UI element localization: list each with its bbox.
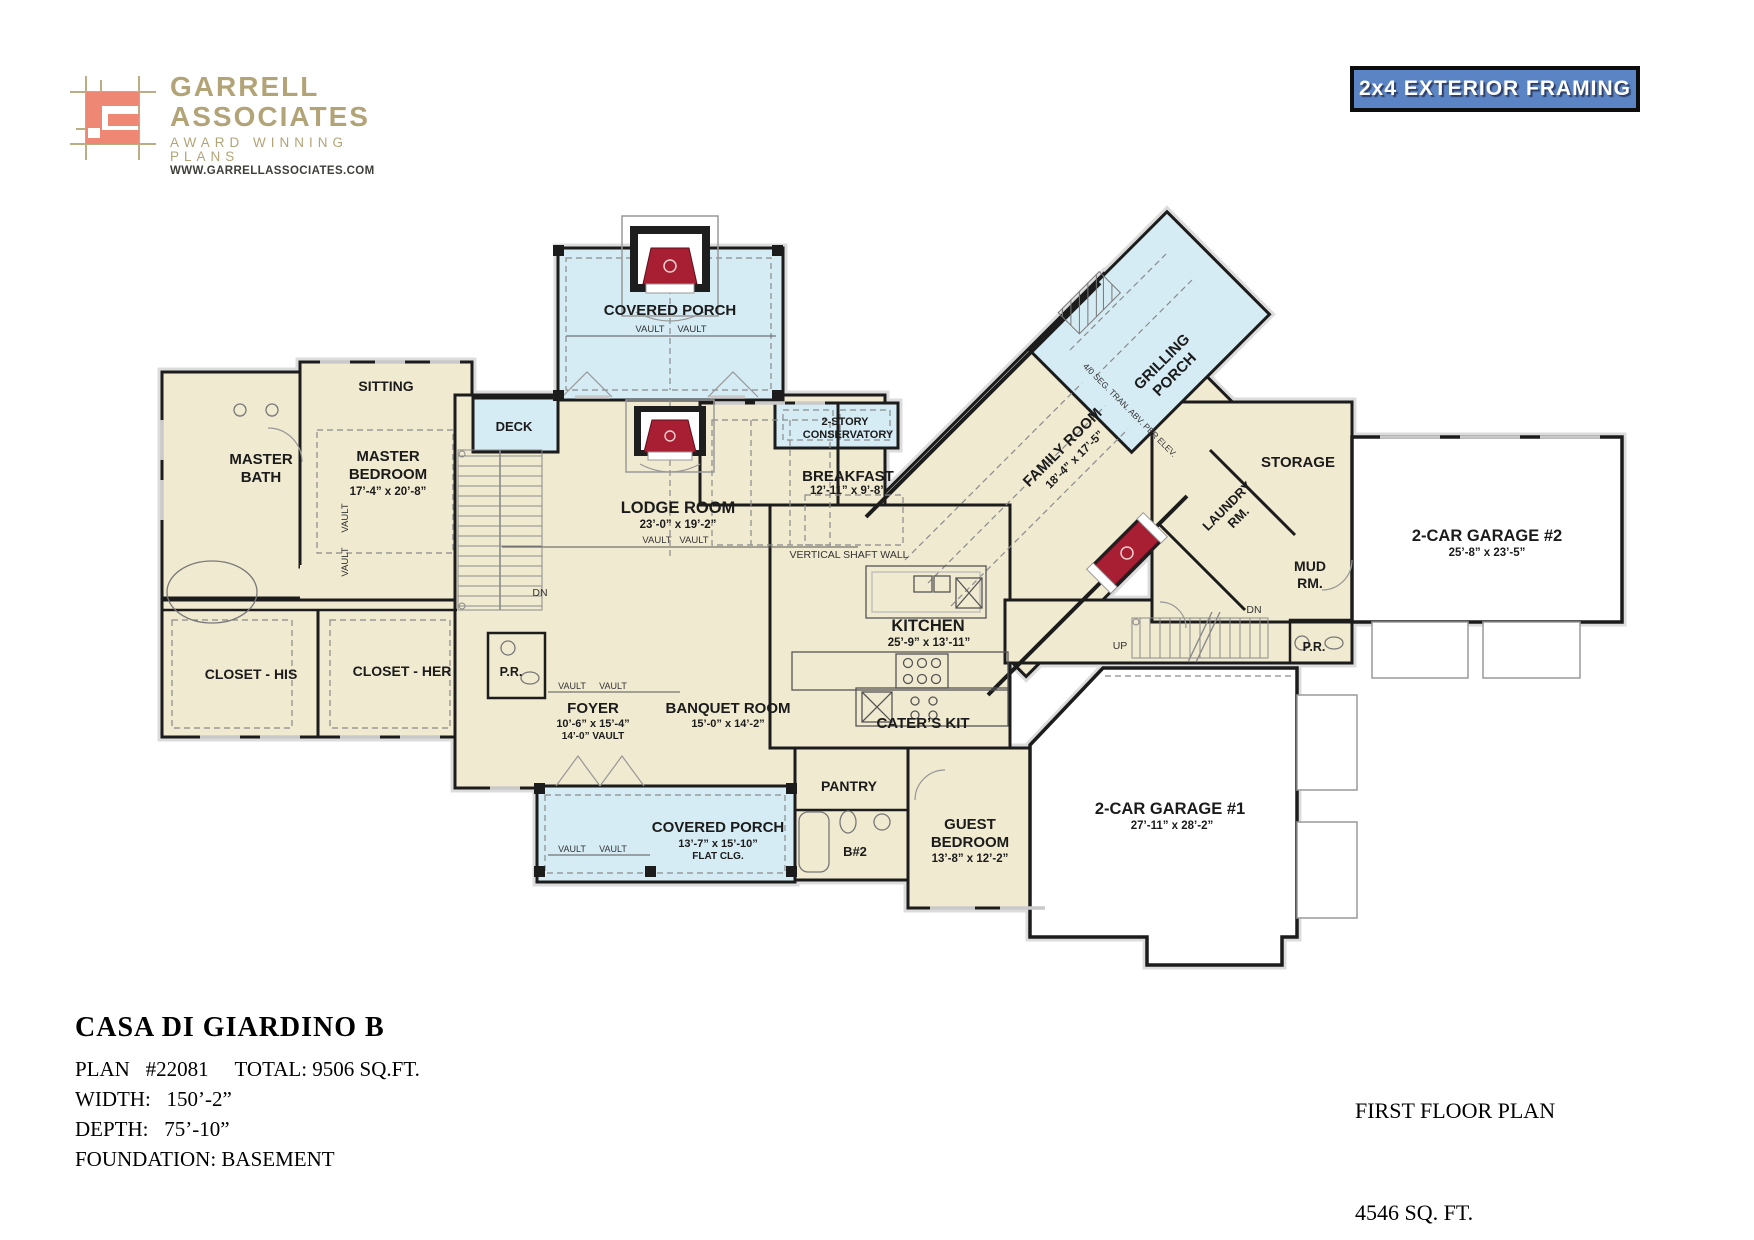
label-banquet: BANQUET ROOM xyxy=(666,700,791,717)
label-vertical-shaft: VERTICAL SHAFT WALL xyxy=(789,549,908,561)
label-lodge-vault-l: VAULT xyxy=(642,535,671,546)
plan-number-line: PLAN #22081 TOTAL: 9506 SQ.FT. xyxy=(75,1054,420,1084)
label-master-bedroom-2: BEDROOM xyxy=(349,466,427,483)
label-porch-bottom-note: FLAT CLG. xyxy=(692,851,744,862)
garage1-bay-2 xyxy=(1297,822,1357,918)
label-dn-garage: DN xyxy=(1246,604,1261,616)
label-pr1: P.R. xyxy=(500,665,523,679)
label-garage1-dims: 27’-11” x 28’-2” xyxy=(1131,820,1213,832)
label-master-bath-1: MASTER xyxy=(229,451,293,468)
label-mud-1: MUD xyxy=(1294,558,1326,574)
floor-sqft: 4546 SQ. FT. xyxy=(1355,1196,1555,1230)
label-foyer-vault-r: VAULT xyxy=(599,681,627,691)
label-conservatory-1: 2-STORY xyxy=(821,416,869,428)
label-kitchen: KITCHEN xyxy=(891,617,964,635)
label-pantry: PANTRY xyxy=(821,778,878,794)
label-storage: STORAGE xyxy=(1261,454,1335,471)
label-porch-bottom: COVERED PORCH xyxy=(652,819,785,836)
label-guest-1: GUEST xyxy=(944,816,996,833)
label-garage1: 2-CAR GARAGE #1 xyxy=(1095,800,1245,818)
label-lodge: LODGE ROOM xyxy=(621,499,736,517)
label-foyer-vault-l: VAULT xyxy=(558,681,586,691)
label-caters: CATER’S KIT xyxy=(876,715,969,732)
label-lodge-vault-r: VAULT xyxy=(679,535,708,546)
label-dn-lodge: DN xyxy=(532,587,547,599)
label-banquet-dims: 15’-0” x 14’-2” xyxy=(691,718,764,730)
plan-width-line: WIDTH: 150’-2” xyxy=(75,1084,420,1114)
label-kitchen-dims: 25’-9” x 13’-11” xyxy=(888,637,970,649)
plan-depth-line: DEPTH: 75’-10” xyxy=(75,1114,420,1144)
label-porch-bottom-vault-r: VAULT xyxy=(599,844,627,854)
label-porch-bottom-dims: 13’-7” x 15’-10” xyxy=(678,838,758,850)
label-deck: DECK xyxy=(496,419,533,434)
plan-foundation-line: FOUNDATION: BASEMENT xyxy=(75,1144,420,1174)
label-closet-his: CLOSET - HIS xyxy=(205,666,298,682)
room-kitchen-zone xyxy=(770,505,1010,748)
label-closet-her: CLOSET - HER xyxy=(353,663,452,679)
label-guest-dims: 13’-8” x 12’-2” xyxy=(932,853,1009,865)
garage1-bay-1 xyxy=(1297,695,1357,790)
label-master-bath-2: BATH xyxy=(241,469,282,486)
label-porch-bottom-vault-l: VAULT xyxy=(558,844,586,854)
label-breakfast-dims: 12’-11” x 9’-8” xyxy=(810,485,886,497)
label-porch-top: COVERED PORCH xyxy=(604,302,737,319)
label-garage2-dims: 25’-8” x 23’-5” xyxy=(1449,547,1526,559)
floor-info-block: FIRST FLOOR PLAN 4546 SQ. FT. Ceiling He… xyxy=(1355,1026,1555,1240)
label-vault-vert-2: VAULT xyxy=(340,547,351,576)
label-vault-vert-1: VAULT xyxy=(340,503,351,532)
label-foyer-note: 14’-0” VAULT xyxy=(562,731,624,742)
label-conservatory-2: CONSERVATORY xyxy=(803,429,894,441)
label-sitting: SITTING xyxy=(358,378,413,394)
plan-title: CASA DI GIARDINO B xyxy=(75,1012,420,1044)
label-foyer: FOYER xyxy=(567,700,619,717)
garage2-bay-2 xyxy=(1483,622,1580,678)
label-porch-top-vault-r: VAULT xyxy=(677,324,706,335)
label-master-bedroom-1: MASTER xyxy=(356,448,420,465)
label-guest-2: BEDROOM xyxy=(931,834,1009,851)
garage2-bay-1 xyxy=(1372,622,1468,678)
floor-name: FIRST FLOOR PLAN xyxy=(1355,1094,1555,1128)
label-pr2: P.R. xyxy=(1303,640,1326,654)
label-lodge-dims: 23’-0” x 19’-2” xyxy=(640,519,717,531)
plan-info-block: CASA DI GIARDINO B PLAN #22081 TOTAL: 95… xyxy=(75,1012,420,1174)
label-up: UP xyxy=(1113,640,1128,652)
label-garage2: 2-CAR GARAGE #2 xyxy=(1412,527,1562,545)
label-porch-top-vault-l: VAULT xyxy=(635,324,664,335)
label-foyer-dims: 10’-6” x 15’-4” xyxy=(556,718,629,730)
room-pantry-b2 xyxy=(795,748,908,880)
label-master-bedroom-dims: 17’-4” x 20’-8” xyxy=(350,486,427,498)
label-mud-2: RM. xyxy=(1297,575,1323,591)
label-b2: B#2 xyxy=(843,844,867,859)
page: GARRELL ASSOCIATES AWARD WINNING PLANS W… xyxy=(0,0,1754,1240)
label-breakfast: BREAKFAST xyxy=(802,468,894,485)
